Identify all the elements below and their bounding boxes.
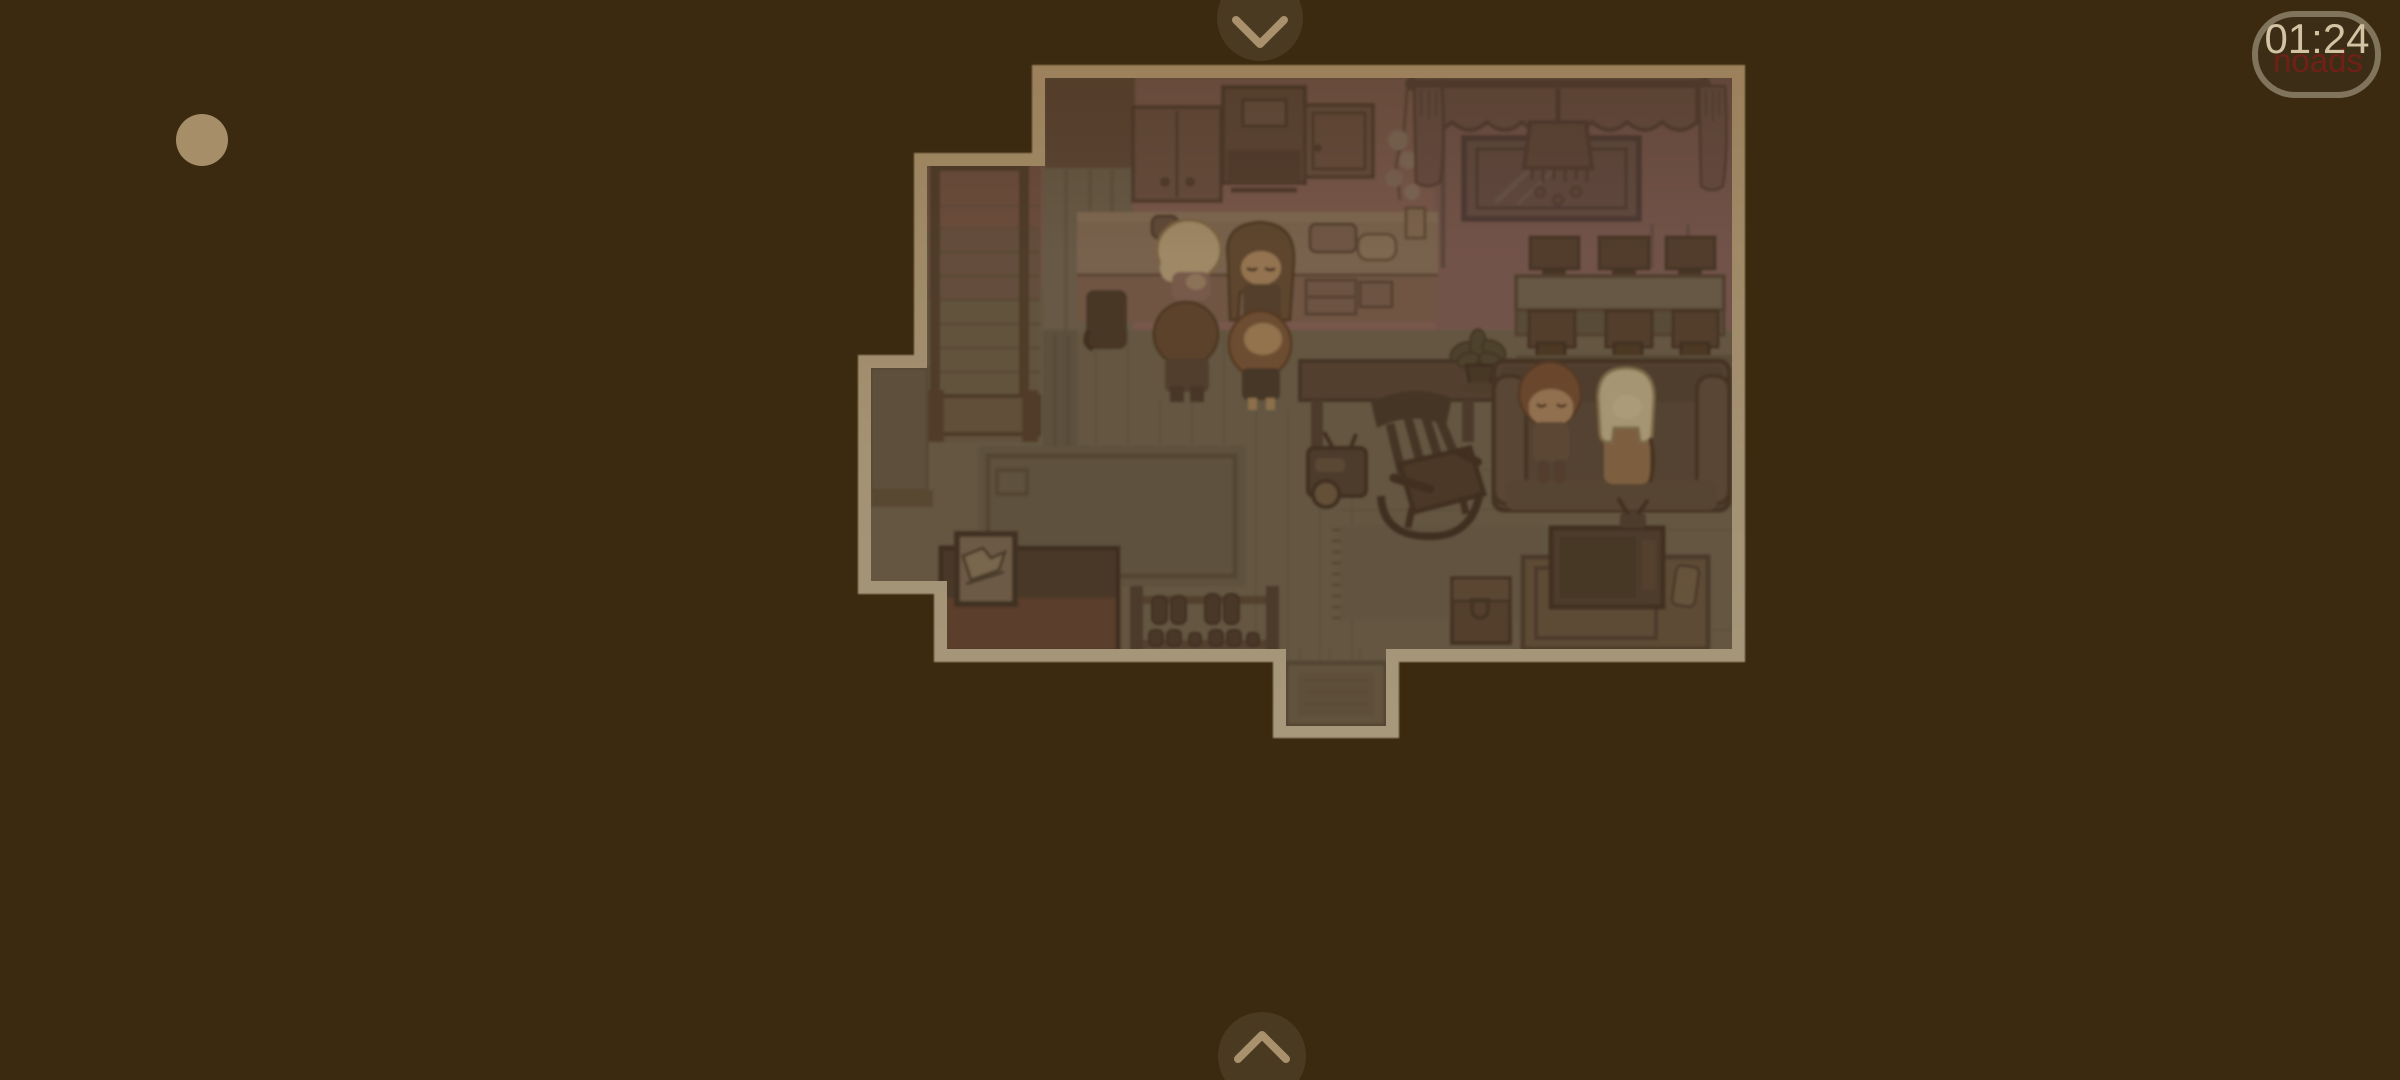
svg-text:01:24: 01:24 — [2264, 15, 2369, 62]
